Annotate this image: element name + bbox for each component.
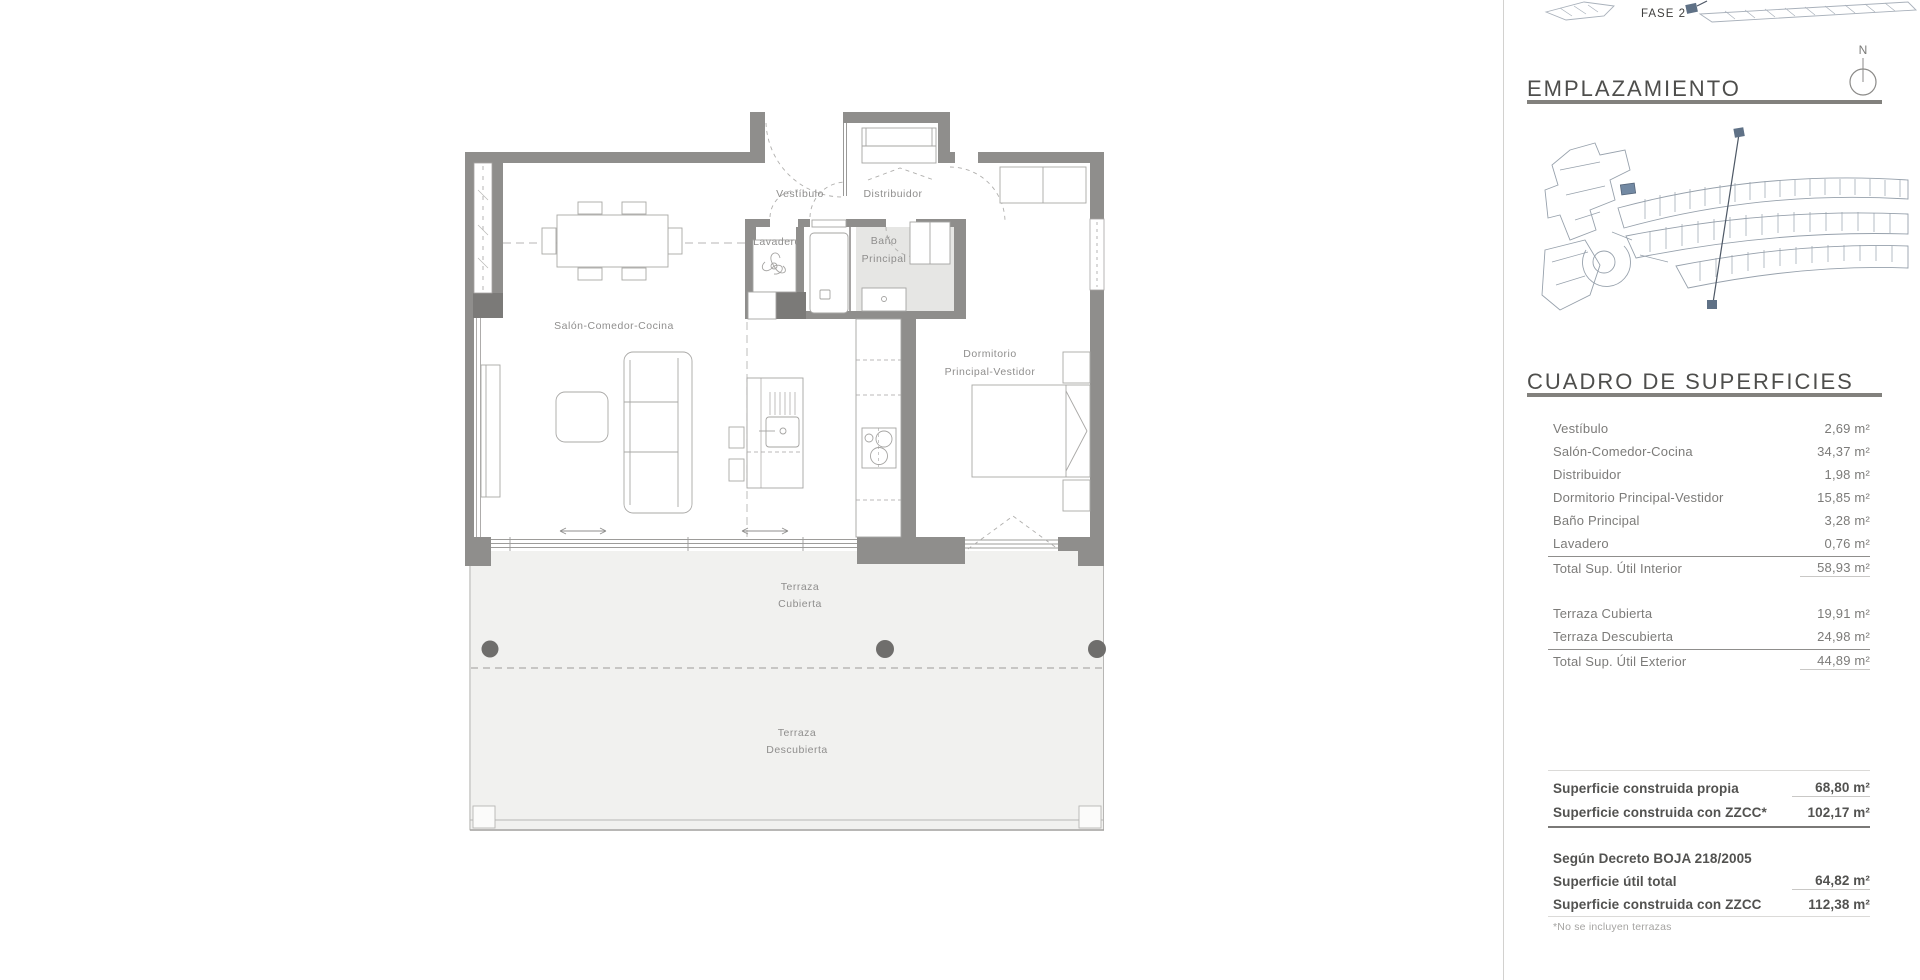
page: Vestíbulo Distribuidor Lavadero Baño Pri… [0,0,1920,980]
row-label: Vestíbulo [1553,421,1608,436]
coffee-table [556,392,608,442]
row-label: Total Sup. Útil Interior [1553,561,1682,576]
terrace-column [482,641,499,658]
row-label: Según Decreto BOJA 218/2005 [1553,851,1752,866]
row-label: Terraza Descubierta [1553,629,1673,644]
label-terraza-cubierta-2: Cubierta [778,598,822,610]
row-value: 58,93 m² [1800,560,1870,577]
distribuidor-closet [862,128,936,163]
sofa [624,352,692,513]
surface-row: Salón-Comedor-Cocina34,37 m² [1548,440,1870,463]
surface-row: Terraza Cubierta19,91 m² [1548,602,1870,625]
surface-total-exterior: Total Sup. Útil Exterior44,89 m² [1548,650,1870,673]
north-compass-icon: N [1840,36,1886,98]
surface-total-interior: Total Sup. Útil Interior58,93 m² [1548,557,1870,579]
row-label: Superficie construida con ZZCC [1553,897,1762,912]
footnote: *No se incluyen terrazas [1548,921,1870,933]
compass-n-label: N [1859,43,1868,57]
floor-plan: Vestíbulo Distribuidor Lavadero Baño Pri… [0,0,1503,980]
label-dormitorio-1: Dormitorio [963,348,1016,360]
row-value: 1,98 m² [1825,467,1870,482]
row-value: 0,76 m² [1825,536,1870,551]
terrace-column [1088,640,1106,658]
label-lavadero: Lavadero [753,236,801,248]
kitchen-stools [729,427,744,481]
highlighted-unit [1620,183,1635,195]
dining-table [542,202,682,280]
right-window [1090,219,1104,290]
surface-row: Distribuidor1,98 m² [1548,463,1870,486]
decreto-heading: Según Decreto BOJA 218/2005 [1548,846,1870,870]
label-distribuidor: Distribuidor [863,188,922,200]
label-dormitorio-2: Principal-Vestidor [945,366,1036,378]
emplazamiento-underline [1527,100,1882,104]
row-value: 64,82 m² [1792,873,1870,890]
surface-row: Dormitorio Principal-Vestidor15,85 m² [1548,486,1870,509]
row-label: Distribuidor [1553,467,1621,482]
row-label: Baño Principal [1553,513,1640,528]
terrace-sliding-doors [491,537,1058,551]
row-value: 15,85 m² [1817,490,1870,505]
terrace [469,551,1106,831]
label-terraza-cubierta-1: Terraza [781,581,820,593]
sidebar-divider [1503,0,1504,980]
row-label: Dormitorio Principal-Vestidor [1553,490,1724,505]
row-value: 2,69 m² [1825,421,1870,436]
superficies-underline [1527,393,1882,397]
fase-marker-line [1713,134,1739,303]
row-value: 34,37 m² [1817,444,1870,459]
surface-table: Vestíbulo2,69 m² Salón-Comedor-Cocina34,… [1548,417,1870,933]
label-terraza-descubierta-1: Terraza [778,727,817,739]
siteplan-top-fragment: FASE 2 [1528,0,1920,26]
surface-row: Baño Principal3,28 m² [1548,509,1870,532]
table-rule-light [1548,916,1870,917]
surface-row-decreto: Superficie útil total64,82 m² [1548,870,1870,893]
tv-console [481,365,500,497]
row-value: 102,17 m² [1808,805,1870,820]
surface-row: Vestíbulo2,69 m² [1548,417,1870,440]
label-terraza-descubierta-2: Descubierta [766,744,828,756]
row-label: Total Sup. Útil Exterior [1553,654,1686,669]
entry-door-leaf [844,123,847,196]
row-value: 44,89 m² [1800,653,1870,670]
row-label: Superficie construida con ZZCC* [1553,805,1767,820]
label-bano-2: Principal [862,253,907,265]
fase2-top-label: FASE 2 [1641,8,1686,20]
bed [972,385,1090,477]
fase1-marker [1733,127,1744,138]
row-label: Terraza Cubierta [1553,606,1652,621]
label-bano-1: Baño [871,235,898,247]
surface-row-construida: Superficie construida con ZZCC*102,17 m² [1548,800,1870,824]
row-label: Salón-Comedor-Cocina [1553,444,1693,459]
row-value: 24,98 m² [1817,629,1870,644]
emplazamiento-title: EMPLAZAMIENTO [1527,76,1741,102]
kitchen-island [747,378,803,488]
kitchen-counter [856,319,901,537]
surface-row-decreto: Superficie construida con ZZCC112,38 m² [1548,893,1870,916]
label-vestibulo: Vestíbulo [776,188,824,200]
fase2-marker [1707,300,1717,309]
terrace-column [876,640,894,658]
label-salon: Salón-Comedor-Cocina [554,320,674,332]
surface-row: Terraza Descubierta24,98 m² [1548,625,1870,648]
surface-row-construida: Superficie construida propia68,80 m² [1548,776,1870,800]
row-label: Lavadero [1553,536,1609,551]
row-label: Superficie construida propia [1553,781,1739,796]
superficies-title: CUADRO DE SUPERFICIES [1527,369,1854,395]
surface-row: Lavadero0,76 m² [1548,532,1870,555]
slider-arrows [560,528,788,534]
row-label: Superficie útil total [1553,874,1677,889]
fase2-top-marker [1685,3,1698,14]
siteplan-map [1538,120,1915,328]
row-value: 112,38 m² [1808,897,1870,912]
row-value: 19,91 m² [1817,606,1870,621]
row-value: 3,28 m² [1825,513,1870,528]
row-value: 68,80 m² [1792,780,1870,797]
